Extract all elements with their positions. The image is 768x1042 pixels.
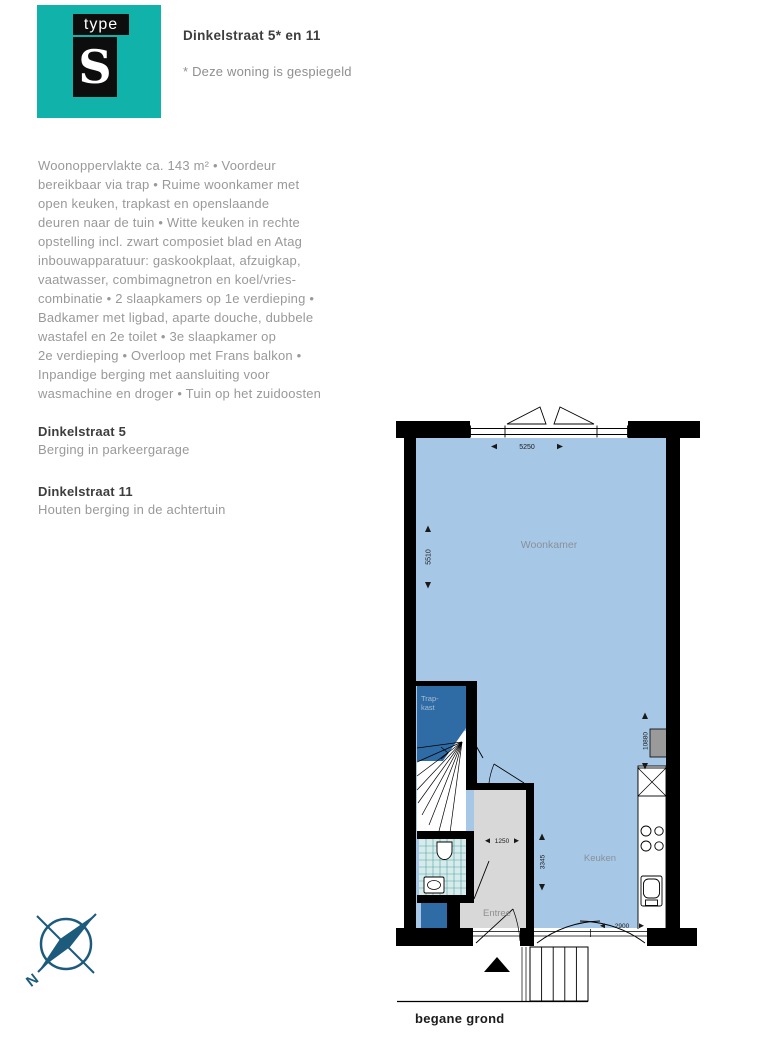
meterkast-floor	[421, 903, 447, 928]
wall-right	[666, 421, 680, 946]
wall-top-left-stub	[396, 421, 470, 438]
wall-stair-right	[466, 681, 477, 790]
logo-type-label: type	[73, 14, 129, 35]
wall-entree-keuken	[526, 783, 534, 928]
sink-basin-icon	[641, 876, 662, 906]
compass-icon: N	[22, 903, 110, 991]
section-text: Berging in parkeergarage	[38, 442, 383, 457]
woonkamer-label: Woonkamer	[521, 539, 578, 551]
door-swing-left-icon	[507, 407, 546, 424]
wall-bottom-left	[396, 928, 473, 946]
svg-text:1250: 1250	[495, 838, 510, 845]
kitchen-sink-unit-icon	[638, 768, 666, 796]
logo-s-label: S	[73, 37, 117, 97]
trapkast-label-line2: kast	[421, 703, 436, 712]
wall-meterkast-right	[447, 903, 460, 928]
floorplan-drawing: 5250 5510 1250 3345 2900	[390, 400, 720, 1042]
door-swing-right-icon	[554, 407, 594, 424]
wall-bottom-pillar	[520, 928, 534, 946]
section-title: Dinkelstraat 5	[38, 424, 383, 439]
flue-niche	[650, 729, 668, 757]
section-dinkelstraat-5: Dinkelstraat 5 Berging in parkeergarage	[38, 424, 383, 457]
property-description: Woonoppervlakte ca. 143 m² • Voordeur be…	[38, 156, 383, 403]
wall-bottom-right	[647, 928, 697, 946]
wall-top-right-stub	[628, 421, 700, 438]
wall-left	[404, 421, 416, 946]
svg-text:10880: 10880	[642, 732, 649, 750]
wall-toilet-right	[466, 839, 474, 903]
svg-text:2900: 2900	[615, 923, 630, 930]
compass-needle	[40, 914, 96, 969]
trapkast-label-line1: Trap-	[421, 694, 439, 703]
wall-toilet-top	[417, 831, 474, 839]
svg-text:5510: 5510	[425, 549, 432, 565]
mirrored-note: * Deze woning is gespiegeld	[183, 64, 352, 79]
type-s-logo: type S	[37, 5, 161, 118]
entrance-stairs	[397, 947, 588, 1002]
svg-text:5250: 5250	[519, 444, 535, 451]
toilet-bowl-icon	[437, 842, 452, 860]
toilet-sink-icon	[424, 877, 444, 893]
page-title: Dinkelstraat 5* en 11	[183, 28, 321, 43]
top-window-doors	[470, 407, 628, 438]
compass-north-label: N	[23, 971, 42, 991]
wall-entree-top	[474, 783, 526, 790]
wall-toilet-bottom	[417, 895, 474, 903]
section-dinkelstraat-11: Dinkelstraat 11 Houten berging in de ach…	[38, 484, 383, 517]
brochure-page: type S Dinkelstraat 5* en 11 * Deze woni…	[0, 0, 768, 1042]
wall-trapkast-top	[416, 681, 467, 686]
floor-caption: begane grond	[415, 1011, 505, 1026]
keuken-label: Keuken	[584, 853, 616, 864]
section-text: Houten berging in de achtertuin	[38, 502, 383, 517]
entree-label: Entree	[483, 908, 511, 919]
svg-text:3345: 3345	[539, 854, 546, 869]
section-title: Dinkelstraat 11	[38, 484, 383, 499]
entrance-arrow-icon	[484, 957, 510, 972]
